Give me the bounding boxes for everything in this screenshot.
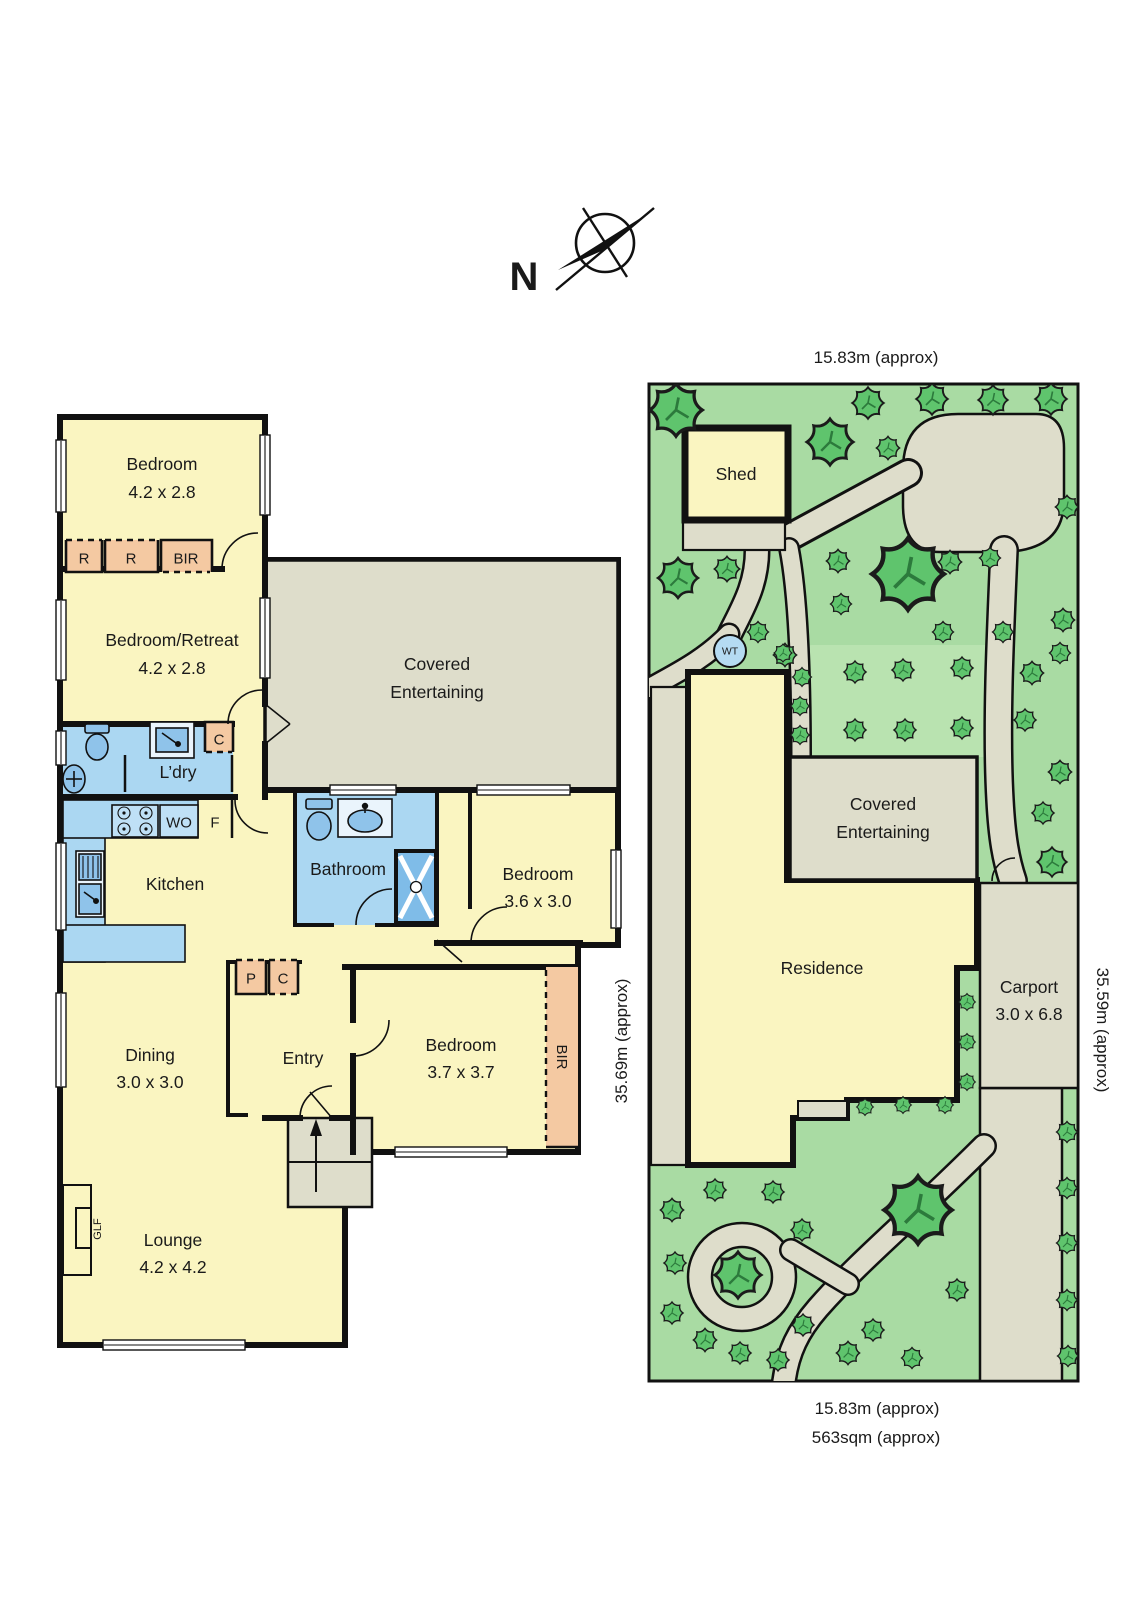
tree-icon: [959, 994, 976, 1011]
window: [260, 435, 270, 515]
tree-icon: [658, 558, 698, 598]
tree-icon: [1048, 760, 1071, 783]
tree-icon: [933, 622, 954, 643]
window: [477, 785, 570, 795]
front-porch: [288, 1118, 372, 1207]
room-dims: 4.2 x 4.2: [139, 1257, 206, 1277]
tree-icon: [892, 659, 914, 681]
tree-icon: [1057, 1290, 1078, 1311]
tree-icon: [1050, 643, 1071, 664]
room-dims: 3.6 x 3.0: [504, 891, 571, 911]
floor-plan: Bedroom 4.2 x 2.8 Bedroom/Retreat 4.2 x …: [56, 417, 621, 1350]
room-label: Bathroom: [310, 859, 386, 879]
tree-icon: [946, 1279, 968, 1301]
cupboard-label: C: [214, 731, 225, 748]
tree-icon: [993, 622, 1014, 643]
room-label: Dining: [125, 1045, 175, 1065]
room-label: Covered: [404, 654, 470, 674]
tree-icon: [693, 1328, 716, 1351]
fridge-label: F: [210, 814, 219, 831]
tree-icon: [729, 1342, 751, 1364]
tree-icon: [650, 384, 703, 437]
cupboard-label: C: [278, 970, 289, 987]
tree-icon: [715, 1252, 761, 1298]
robe-label: R: [79, 550, 90, 567]
tree-icon: [938, 550, 961, 573]
floorplan-page: N: [0, 0, 1131, 1600]
shower-icon: [396, 851, 436, 923]
site-covered-label: Covered: [850, 794, 916, 814]
room-label: Kitchen: [146, 874, 204, 894]
tree-icon: [704, 1179, 726, 1201]
tree-icon: [836, 1341, 859, 1364]
bir-label: BIR: [173, 550, 198, 567]
tree-icon: [661, 1302, 683, 1324]
tree-icon: [959, 1034, 976, 1051]
toilet-icon: [85, 724, 109, 760]
window: [56, 993, 66, 1087]
window: [395, 1147, 507, 1157]
room-label: Bedroom/Retreat: [105, 630, 238, 650]
room-dims: 4.2 x 2.8: [138, 658, 205, 678]
carport-label: Carport: [1000, 977, 1058, 997]
tree-icon: [978, 385, 1007, 414]
window: [330, 785, 396, 795]
bir-label: BIR: [553, 1044, 570, 1069]
tree-icon: [1037, 847, 1066, 876]
laundry-tub-icon: [63, 765, 85, 793]
room-label: L’dry: [160, 762, 197, 782]
site-covered-entertaining: [790, 757, 977, 880]
window: [56, 843, 66, 930]
bathroom-sink-icon: [338, 799, 392, 837]
tree-icon: [884, 1176, 951, 1243]
tree-icon: [1032, 802, 1054, 824]
tree-icon: [774, 644, 792, 662]
plan-drawing: N: [0, 0, 1131, 1600]
kitchen-sink-icon: [76, 851, 104, 917]
tree-icon: [826, 549, 849, 572]
tree-icon: [951, 657, 973, 679]
pantry-label: P: [246, 970, 256, 987]
window: [56, 440, 66, 512]
room-label: Entertaining: [390, 682, 483, 702]
wall-oven-label: WO: [166, 814, 192, 831]
tree-icon: [1014, 709, 1036, 731]
site-plan: WT Shed Covered Entertaining Residence C…: [612, 348, 1112, 1447]
site-covered-label: Entertaining: [836, 822, 929, 842]
tree-icon: [872, 538, 943, 609]
tree-icon: [937, 1097, 954, 1114]
water-tank: WT: [714, 635, 746, 667]
tree-icon: [916, 383, 948, 415]
window: [103, 1340, 245, 1350]
compass-north-label: N: [510, 255, 539, 299]
tree-icon: [831, 594, 852, 615]
tree-icon: [1058, 1346, 1079, 1367]
stove-icon: [112, 805, 158, 837]
tree-icon: [1035, 383, 1067, 415]
residence-label: Residence: [781, 958, 864, 978]
tree-icon: [791, 1219, 813, 1241]
gas-log-fire-label: GLF: [92, 1218, 104, 1240]
room-label: Lounge: [144, 1230, 202, 1250]
north-arrow-icon: [558, 212, 650, 270]
tree-icon: [792, 1314, 814, 1336]
tree-icon: [862, 1319, 884, 1341]
window: [260, 598, 270, 678]
rear-porch: [798, 1101, 847, 1118]
tree-icon: [980, 548, 1001, 569]
tree-icon: [664, 1252, 686, 1274]
tree-icon: [902, 1348, 923, 1369]
dimension-bottom: 15.83m (approx): [815, 1399, 940, 1418]
tree-icon: [852, 387, 884, 419]
tree-icon: [1057, 1178, 1078, 1199]
tree-icon: [951, 717, 973, 739]
dimension-top: 15.83m (approx): [814, 348, 939, 367]
room-dims: 4.2 x 2.8: [128, 482, 195, 502]
carport-dims: 3.0 x 6.8: [995, 1004, 1062, 1024]
tree-icon: [748, 622, 769, 643]
window: [56, 731, 66, 765]
tree-icon: [1055, 495, 1078, 518]
tree-icon: [1057, 1122, 1078, 1143]
tree-icon: [714, 556, 739, 581]
tree-icon: [793, 668, 812, 687]
room-label: Bedroom: [502, 864, 573, 884]
room-label: Bedroom: [126, 454, 197, 474]
window: [56, 600, 66, 680]
tree-icon: [1057, 1233, 1078, 1254]
tree-icon: [1051, 608, 1074, 631]
room-dims: 3.7 x 3.7: [427, 1062, 494, 1082]
covered-entertaining-area: [265, 560, 618, 790]
tree-icon: [857, 1099, 874, 1116]
toilet-icon: [306, 799, 332, 840]
dimension-right: 35.59m (approx): [1093, 968, 1112, 1093]
tree-icon: [959, 1074, 976, 1091]
tree-icon: [895, 1097, 912, 1114]
compass-rose: N: [510, 208, 654, 299]
tree-icon: [791, 726, 810, 745]
tree-icon: [767, 1349, 789, 1371]
window: [611, 850, 621, 928]
water-tank-label: WT: [722, 646, 739, 658]
tree-icon: [894, 719, 916, 741]
room-dims: 3.0 x 3.0: [116, 1072, 183, 1092]
robe-label: R: [126, 550, 137, 567]
tree-icon: [844, 661, 866, 683]
tree-icon: [1020, 661, 1043, 684]
kitchen-bench-bottom: [63, 925, 185, 962]
tree-icon: [876, 436, 899, 459]
tree-icon: [762, 1181, 784, 1203]
tree-icon: [844, 719, 866, 741]
dimension-left: 35.69m (approx): [612, 979, 631, 1104]
room-label: Bedroom: [425, 1035, 496, 1055]
room-label: Entry: [283, 1048, 324, 1068]
laundry-trough-icon: [150, 722, 194, 758]
shed-label: Shed: [716, 464, 757, 484]
tree-icon: [791, 697, 810, 716]
tree-icon: [660, 1198, 683, 1221]
tree-icon: [807, 419, 853, 465]
dimension-area: 563sqm (approx): [812, 1428, 941, 1447]
